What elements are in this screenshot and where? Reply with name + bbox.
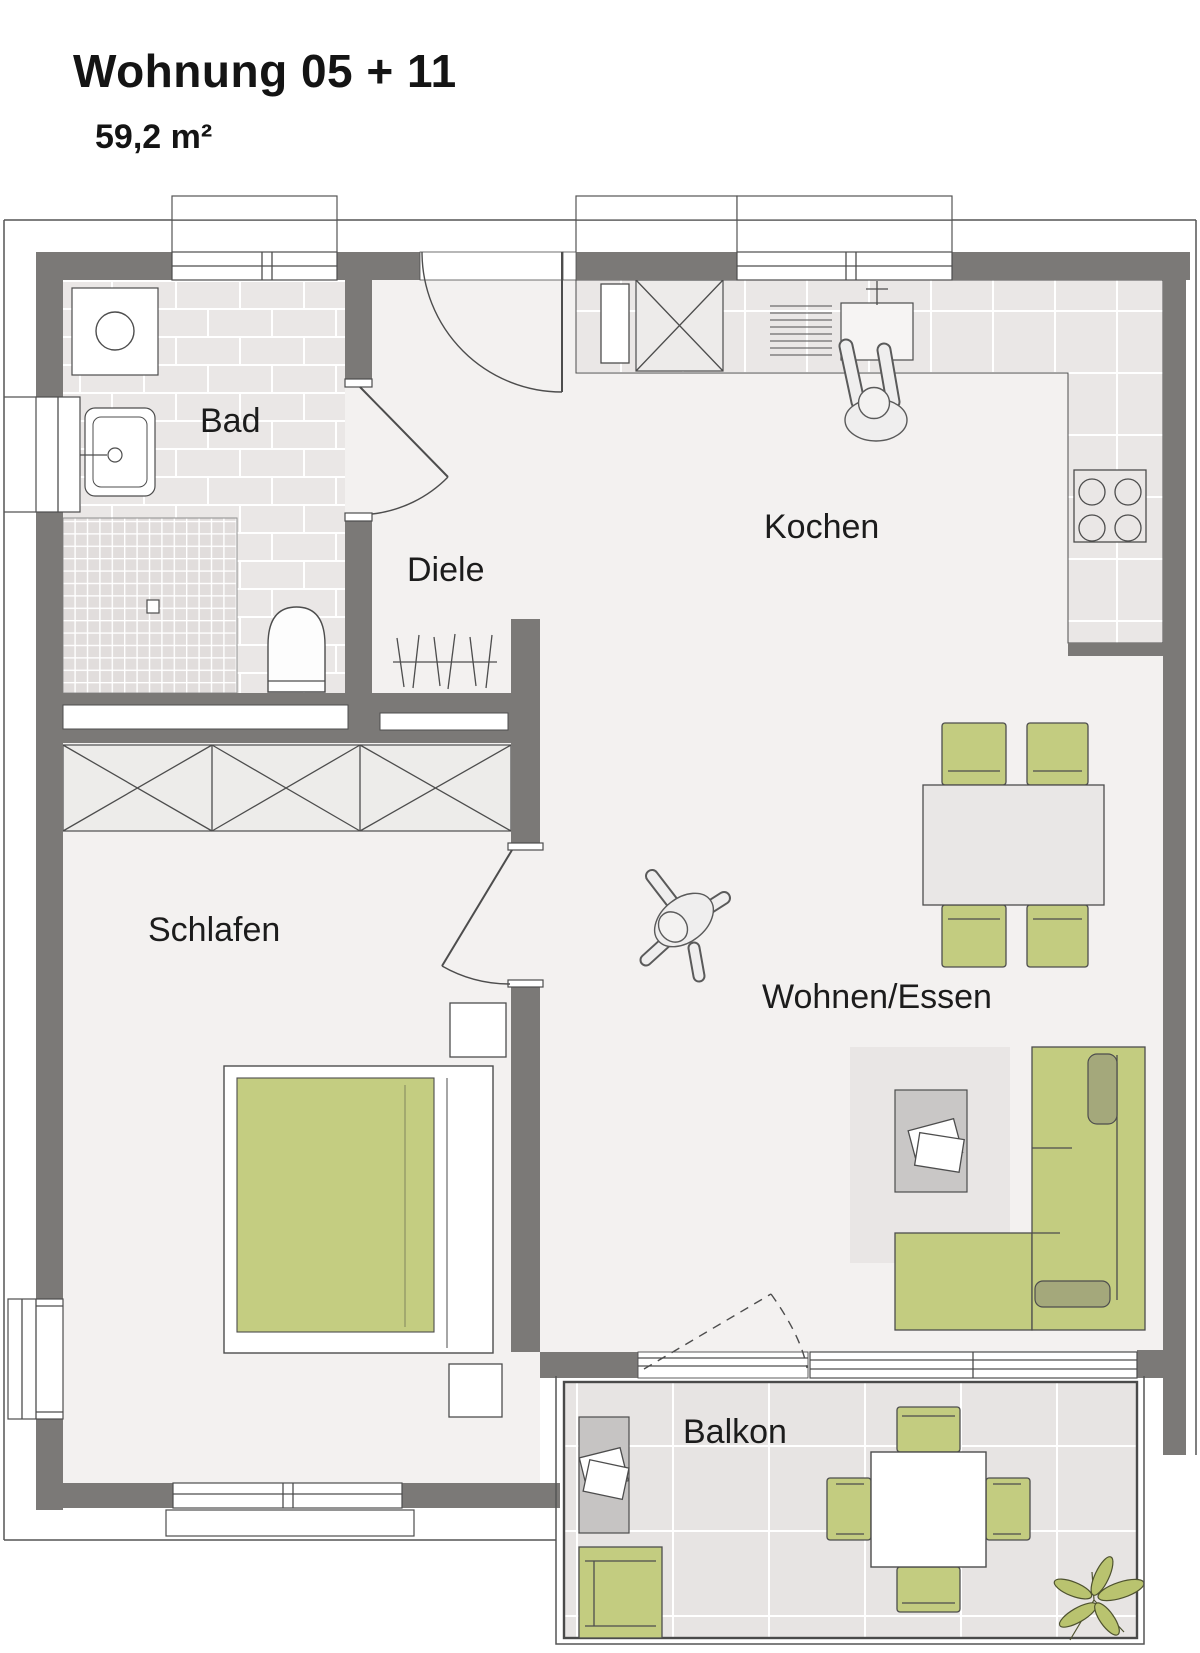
magazine-icon bbox=[915, 1133, 965, 1173]
dining-chair-icon bbox=[1027, 723, 1088, 785]
door-jamb bbox=[345, 513, 372, 521]
window-sill bbox=[576, 196, 737, 220]
sofa-chaise bbox=[895, 1233, 1032, 1330]
wall-top bbox=[36, 252, 172, 280]
wall-right bbox=[1163, 280, 1186, 1455]
dining-chair-icon bbox=[1027, 905, 1088, 967]
window-sill bbox=[172, 196, 337, 220]
dining-table-icon bbox=[923, 785, 1104, 905]
nightstand-icon bbox=[449, 1364, 502, 1417]
door-jamb bbox=[508, 980, 543, 987]
window-bedroom-bottom bbox=[166, 1483, 414, 1536]
wall-left bbox=[36, 512, 63, 1299]
washing-machine-icon bbox=[72, 288, 158, 375]
floorplan-drawing: Bad Diele Kochen Schlafen Wohnen/Essen B… bbox=[0, 0, 1200, 1653]
sofa-cushion bbox=[1088, 1054, 1117, 1124]
floorplan-page: Wohnung 05 + 11 59,2 m² bbox=[0, 0, 1200, 1653]
wall-living-corner bbox=[1137, 1350, 1186, 1378]
wall-top bbox=[337, 252, 420, 280]
window-living-bottom bbox=[810, 1352, 1137, 1378]
balcony-table-icon bbox=[871, 1452, 986, 1567]
balcony-chair-icon bbox=[827, 1478, 871, 1540]
balcony-chair-icon bbox=[897, 1407, 960, 1452]
wall-hall bbox=[511, 619, 540, 843]
window-kitchen-top bbox=[737, 252, 952, 280]
shaft-niche bbox=[380, 713, 508, 730]
room-label-schlafen: Schlafen bbox=[148, 911, 280, 949]
wall-bedroom-living bbox=[511, 987, 540, 1352]
dining-chair-icon bbox=[942, 905, 1006, 967]
wall-bottom bbox=[402, 1483, 560, 1508]
sofa-cushion bbox=[1035, 1281, 1110, 1307]
balcony-chair-icon bbox=[897, 1567, 960, 1612]
dining-chair-icon bbox=[942, 723, 1006, 785]
wall-bathroom bbox=[345, 280, 372, 385]
kitchen-cabinet-door bbox=[601, 284, 629, 363]
door-jamb bbox=[345, 379, 372, 387]
wall-top bbox=[576, 252, 737, 280]
wall-bathroom bbox=[345, 515, 372, 693]
wall-living-bottom bbox=[540, 1352, 638, 1378]
balcony-chair-icon bbox=[986, 1478, 1030, 1540]
room-label-diele: Diele bbox=[407, 551, 484, 589]
washbasin-tap bbox=[108, 448, 122, 462]
shower-drain-icon bbox=[147, 600, 159, 613]
room-label-balkon: Balkon bbox=[683, 1413, 787, 1451]
nightstand-icon bbox=[450, 1003, 506, 1057]
wall-left bbox=[36, 280, 63, 397]
door-jamb bbox=[508, 843, 543, 850]
wall-bottom bbox=[36, 1483, 173, 1508]
toilet-icon bbox=[268, 607, 325, 692]
window-bedroom-left bbox=[8, 1299, 63, 1419]
wall-top bbox=[952, 252, 1190, 280]
room-label-wohnen-essen: Wohnen/Essen bbox=[762, 978, 992, 1016]
room-label-bad: Bad bbox=[200, 402, 261, 440]
window-sill bbox=[737, 196, 952, 220]
window-bathroom-top bbox=[172, 252, 337, 280]
shaft-niche bbox=[63, 705, 348, 729]
window-bathroom-left bbox=[36, 397, 80, 512]
door-jamb bbox=[563, 252, 576, 280]
wall-counter-stub bbox=[1068, 643, 1163, 656]
room-label-kochen: Kochen bbox=[764, 508, 879, 546]
